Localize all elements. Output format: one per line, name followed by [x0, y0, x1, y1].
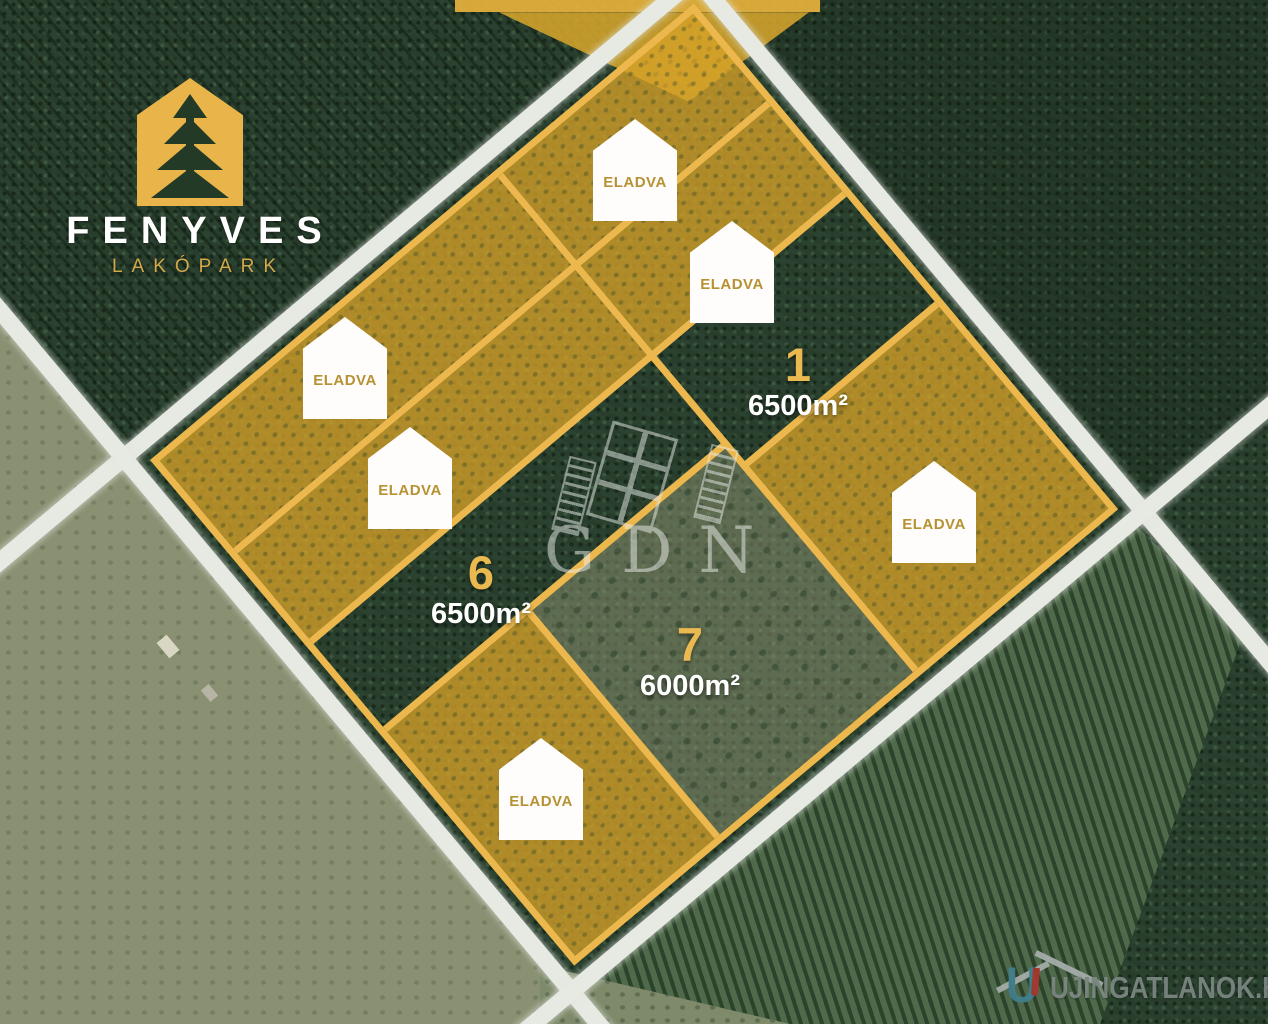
plot-number: 7 — [605, 621, 775, 668]
plot-label: 6 6500m² — [396, 549, 566, 629]
portal-watermark-text: UJINGATLANOK.HU — [1050, 970, 1268, 1006]
plot-area: 6000m² — [605, 672, 775, 701]
aerial-plot-map: ELADVA ELADVA ELADVA ELADVA ELADVA ELADV… — [0, 0, 1268, 1024]
sold-badge-label: ELADVA — [902, 516, 966, 533]
sold-badge-label: ELADVA — [313, 372, 377, 389]
plot-label: 7 6000m² — [605, 621, 775, 701]
plot-area: 6500m² — [713, 392, 883, 421]
portal-watermark: U UJINGATLANOK.HU — [988, 948, 1268, 1020]
plot-label: 1 6500m² — [713, 341, 883, 421]
agency-watermark-text: GDN — [544, 514, 780, 588]
u-house-icon — [1031, 968, 1040, 996]
sold-badge-label: ELADVA — [603, 174, 667, 191]
building-sketch-icon — [693, 444, 739, 525]
agency-watermark: GDN — [552, 422, 767, 592]
plot-number: 6 — [396, 549, 566, 596]
plot-boundary-bar — [455, 0, 820, 12]
plot-number: 1 — [713, 341, 883, 388]
sold-badge-label: ELADVA — [700, 276, 764, 293]
sold-badge-label: ELADVA — [509, 793, 573, 810]
brand-subtitle: LAKÓPARK — [14, 256, 374, 278]
plot-area: 6500m² — [396, 600, 566, 629]
brand-name: FENYVES — [14, 210, 374, 253]
sold-badge-label: ELADVA — [378, 482, 442, 499]
